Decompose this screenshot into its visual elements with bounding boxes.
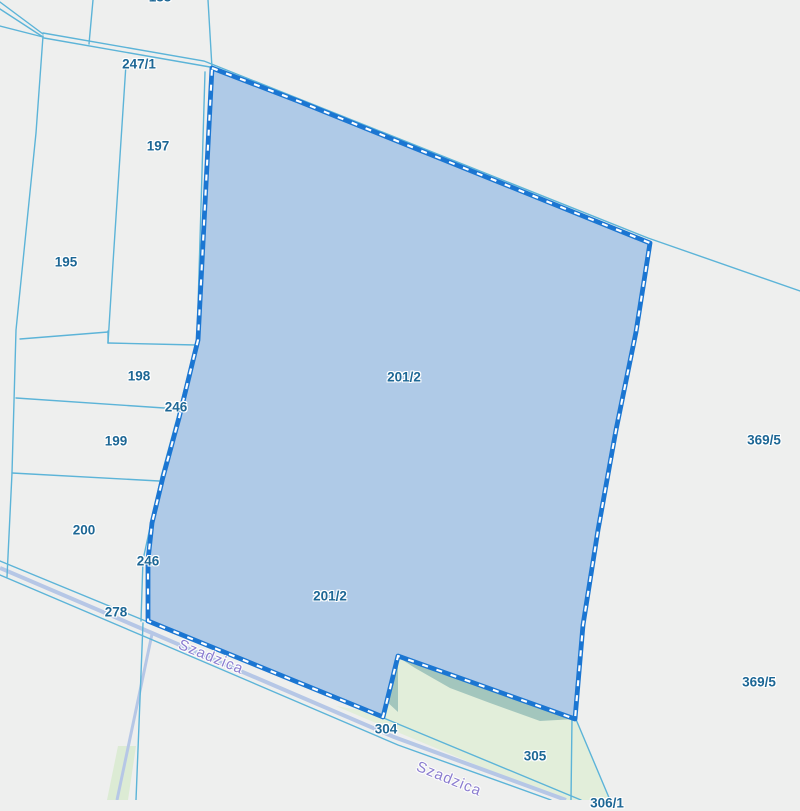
boundary-line xyxy=(571,718,572,800)
cadastral-map-page: { "map": { "type": "cadastral-parcel-map… xyxy=(0,0,800,800)
map-canvas[interactable] xyxy=(0,0,800,800)
